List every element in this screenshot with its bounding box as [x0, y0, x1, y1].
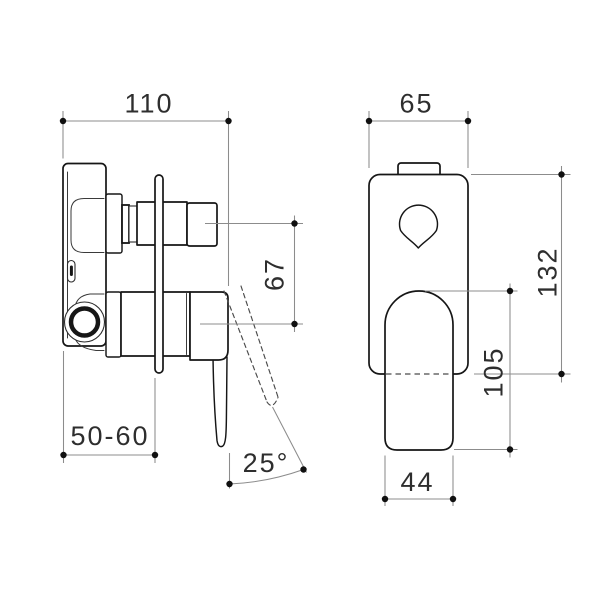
side-view — [63, 164, 278, 447]
dim-plate-width: 65 — [366, 89, 471, 169]
fixing-slot-mark — [70, 266, 73, 277]
outlet-port-ring — [71, 309, 98, 336]
ghost-edge-left — [224, 291, 267, 402]
cover-plate-edge — [155, 175, 163, 373]
diverter-cap — [187, 203, 217, 246]
hub-cap — [190, 292, 228, 360]
lever-rotated-ghost — [224, 286, 278, 405]
lever-blade-front — [385, 291, 453, 450]
dim-label-44: 44 — [400, 467, 434, 497]
dim-handle-width: 44 — [382, 456, 456, 507]
ghost-tip — [267, 398, 278, 406]
diverter-ring-dark — [122, 205, 129, 243]
technical-drawing-canvas: 110 67 50-60 25° 65 — [0, 0, 600, 600]
dim-label-65: 65 — [399, 89, 433, 119]
dim-label-132: 132 — [533, 246, 563, 297]
dim-label-110: 110 — [124, 89, 173, 119]
lever-blade-side — [213, 357, 227, 447]
dim-handle-angle: 25° — [226, 407, 306, 489]
dim-label-67: 67 — [260, 257, 290, 291]
dim-label-105: 105 — [479, 346, 509, 397]
mixer-dimension-drawing: 110 67 50-60 25° 65 — [0, 0, 600, 600]
dim-wall-depth: 50-60 — [60, 351, 158, 463]
front-view — [369, 163, 468, 450]
dim-label-25deg: 25° — [243, 448, 290, 478]
ghost-edge-right — [241, 286, 278, 397]
diverter-flange — [106, 194, 122, 253]
hub-flange — [106, 292, 121, 357]
dim-label-50-60: 50-60 — [70, 421, 149, 451]
diverter-ring — [129, 206, 137, 242]
